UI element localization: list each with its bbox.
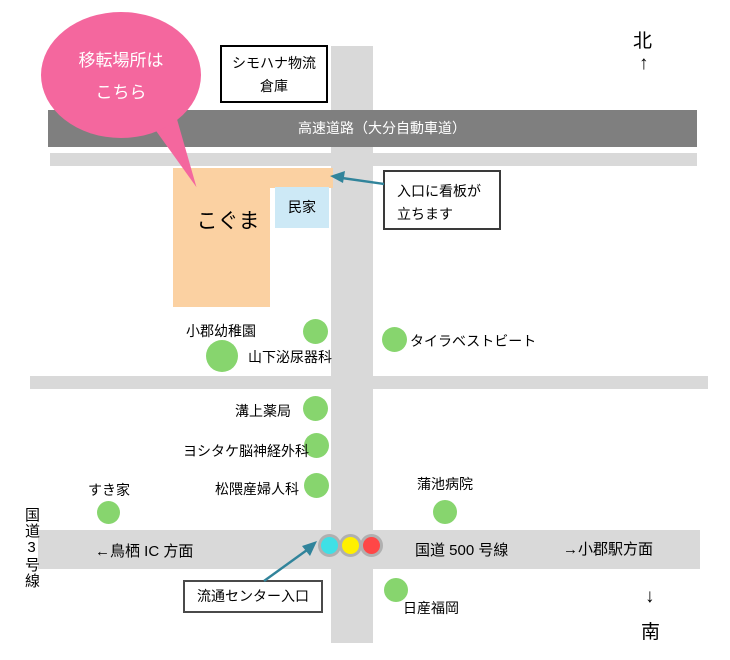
koguma-label: こぐま	[185, 205, 271, 235]
frontage-road	[50, 153, 697, 166]
traffic-light-yellow-icon	[339, 534, 362, 557]
middle-cross-road	[30, 376, 708, 389]
ryutsu-center-arrow-icon	[258, 538, 320, 584]
entrance-callout-line2: 立ちます	[397, 203, 499, 226]
entrance-callout-line1: 入口に看板が	[397, 180, 499, 203]
traffic-light-red-icon	[360, 534, 383, 557]
expressway-label: 高速道路（大分自動車道）	[298, 120, 466, 136]
compass-south-arrow-icon: ↓	[645, 586, 655, 608]
sukiya-label: すき家	[88, 480, 130, 500]
entrance-arrow-icon	[329, 170, 387, 190]
koguma-building	[173, 168, 270, 307]
speech-bubble: 移転場所は こちら	[41, 12, 201, 138]
yamashita-clinic-marker	[303, 319, 328, 344]
taira-best-beat-marker	[382, 327, 407, 352]
traffic-light-cyan-icon	[318, 534, 341, 557]
mizokami-pharmacy-marker	[303, 396, 328, 421]
kamachi-hospital-label: 蒲池病院	[417, 474, 473, 494]
compass-south-label: 南	[641, 617, 660, 644]
route500-label: 国道 500 号線	[415, 539, 508, 560]
bubble-line2: こちら	[41, 78, 201, 103]
kindergarten-label: 小郡幼稚園	[186, 321, 256, 341]
sukiya-marker	[97, 501, 120, 524]
access-map: 高速道路（大分自動車道） こぐま 民家 シモハナ物流 倉庫 移転場所は こちら …	[0, 0, 730, 660]
route3-label: 国道3号線	[21, 507, 42, 589]
matsukuma-clinic-marker	[304, 473, 329, 498]
bubble-line1: 移転場所は	[41, 46, 201, 71]
entrance-sign-callout: 入口に看板が 立ちます	[383, 170, 501, 230]
yoshitake-clinic-label: ヨシタケ脳神経外科	[183, 441, 309, 461]
ryutsu-center-label: 流通センター入口	[197, 588, 309, 604]
taira-best-beat-label: タイラベストビート	[410, 331, 536, 351]
tosu-ic-direction-label: ←鳥栖 IC 方面	[95, 540, 193, 561]
warehouse-line2: 倉庫	[222, 75, 326, 98]
mizokami-pharmacy-label: 溝上薬局	[235, 401, 291, 421]
ryutsu-center-callout: 流通センター入口	[183, 580, 323, 613]
matsukuma-clinic-label: 松隈産婦人科	[215, 479, 299, 499]
compass-north-arrow-icon: ↑	[639, 53, 649, 75]
minka-label: 民家	[288, 199, 316, 215]
ogori-station-direction-label: →小郡駅方面	[563, 538, 653, 559]
warehouse-box: シモハナ物流 倉庫	[220, 45, 328, 103]
kamachi-hospital-marker	[433, 500, 457, 524]
compass-north-label: 北	[633, 26, 652, 53]
kindergarten-marker	[206, 340, 238, 372]
nissan-fukuoka-label: 日産福岡	[403, 598, 459, 618]
warehouse-line1: シモハナ物流	[222, 52, 326, 75]
yamashita-clinic-label: 山下泌尿器科	[248, 347, 332, 367]
minka-building: 民家	[275, 187, 329, 228]
